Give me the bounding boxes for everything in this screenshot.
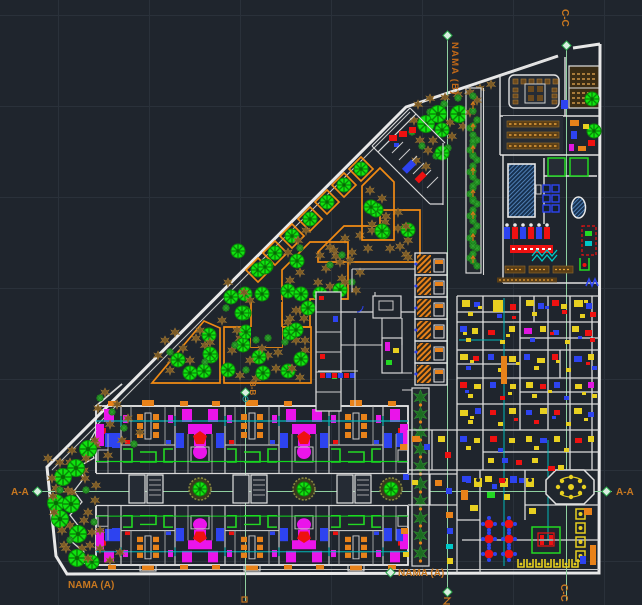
svg-text:C-C: C-C — [558, 584, 569, 602]
svg-text:NAMA (A): NAMA (A) — [398, 568, 444, 579]
svg-text:B-B: B-B — [248, 381, 257, 395]
svg-text:A-A: A-A — [11, 487, 29, 498]
svg-text:NAMA (B): NAMA (B) — [449, 42, 460, 96]
svg-text:NAMA (A): NAMA (A) — [68, 580, 114, 591]
svg-text:C-C: C-C — [559, 9, 570, 27]
svg-text:A-A: A-A — [616, 487, 634, 498]
